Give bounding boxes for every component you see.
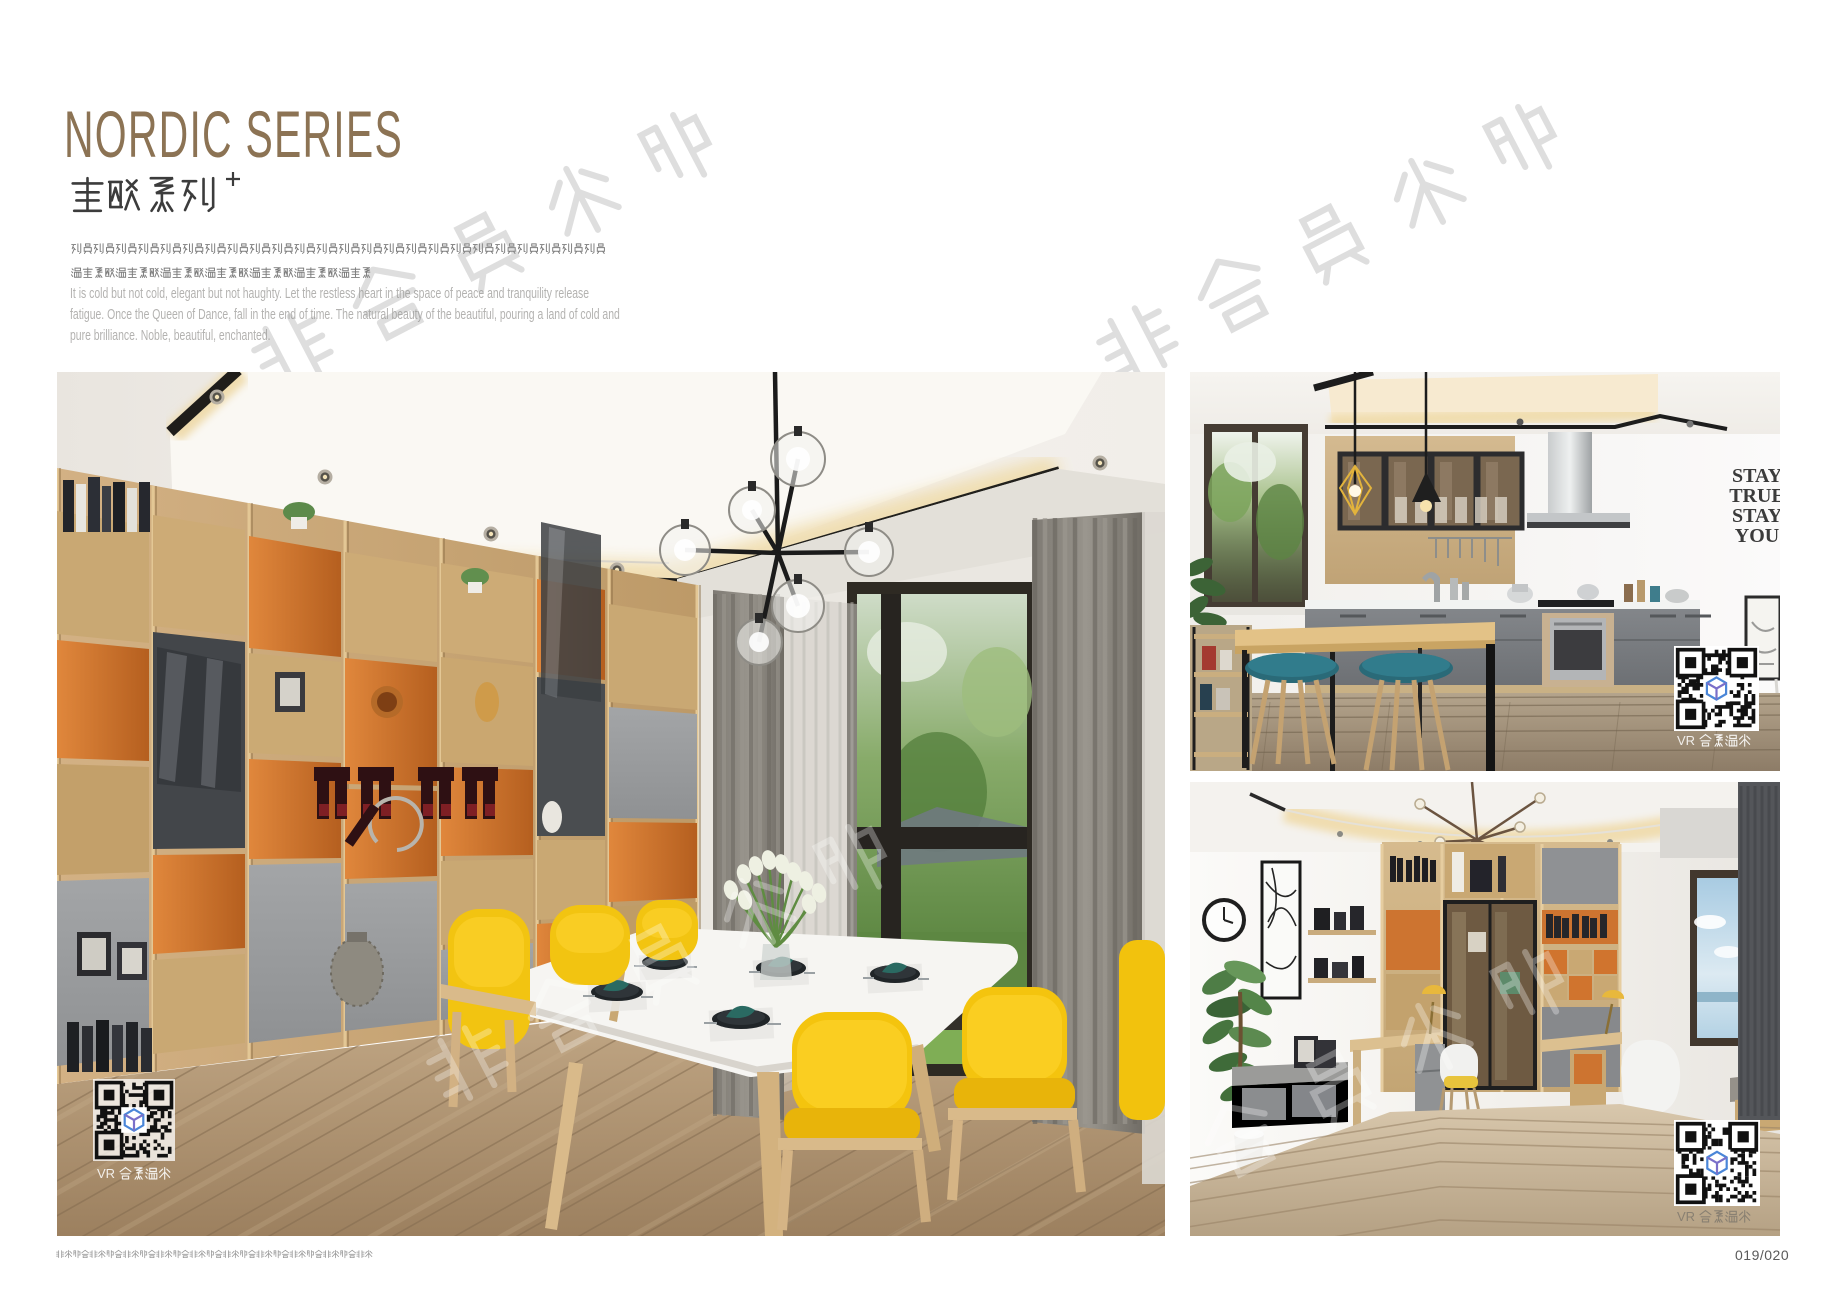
svg-text:STAY: STAY xyxy=(1732,465,1780,487)
svg-text:VR: VR xyxy=(1677,733,1695,748)
svg-text:VR: VR xyxy=(97,1166,115,1181)
svg-text:YOU: YOU xyxy=(1735,525,1779,547)
svg-text:TRUE: TRUE xyxy=(1729,485,1780,507)
svg-text:STAY: STAY xyxy=(1732,505,1780,527)
svg-text:VR: VR xyxy=(1677,1209,1695,1224)
